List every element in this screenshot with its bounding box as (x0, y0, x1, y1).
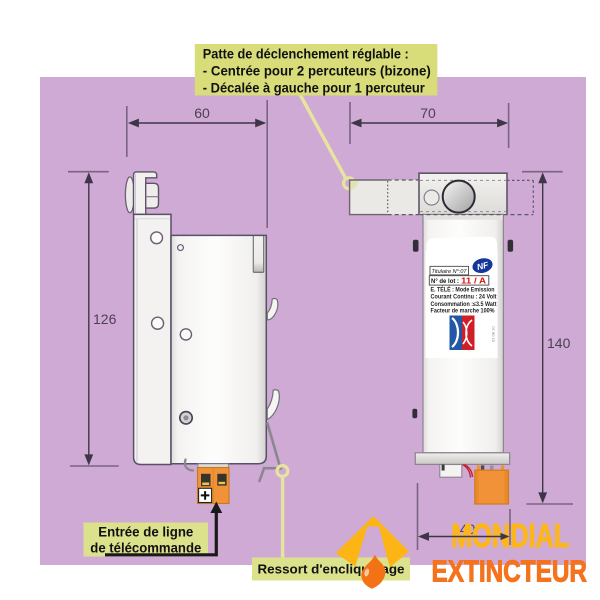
svg-text:de télécommande: de télécommande (90, 540, 201, 555)
svg-text:Patte de déclenchement réglabl: Patte de déclenchement réglable : (203, 47, 409, 62)
svg-text:Courant Continu : 24 Volt: Courant Continu : 24 Volt (431, 295, 497, 301)
svg-text:Entrée de ligne: Entrée de ligne (98, 525, 193, 540)
svg-text:126: 126 (93, 311, 117, 327)
svg-text:- Centrée pour 2 percuteurs (b: - Centrée pour 2 percuteurs (bizone) (203, 64, 431, 79)
svg-text:N° de lot :: N° de lot : (431, 277, 459, 285)
svg-text:EXTINCTEUR: EXTINCTEUR (432, 553, 588, 588)
svg-text:60: 60 (194, 105, 210, 121)
svg-text:11 / A: 11 / A (461, 276, 486, 285)
svg-text:Consommation :≤3.5 Watt: Consommation :≤3.5 Watt (431, 302, 497, 308)
svg-text:E. TÉLÉ : Mode Emission: E. TÉLÉ : Mode Emission (431, 286, 495, 294)
svg-text:140: 140 (547, 335, 571, 351)
svg-text:70: 70 (420, 105, 436, 121)
svg-text:01 08 10: 01 08 10 (491, 326, 496, 342)
svg-text:Titulaire N°:07: Titulaire N°:07 (432, 269, 468, 275)
svg-text:- Décalée à gauche pour 1 perc: - Décalée à gauche pour 1 percuteur (203, 81, 426, 96)
svg-text:Facteur de marche 100%: Facteur de marche 100% (431, 309, 496, 315)
